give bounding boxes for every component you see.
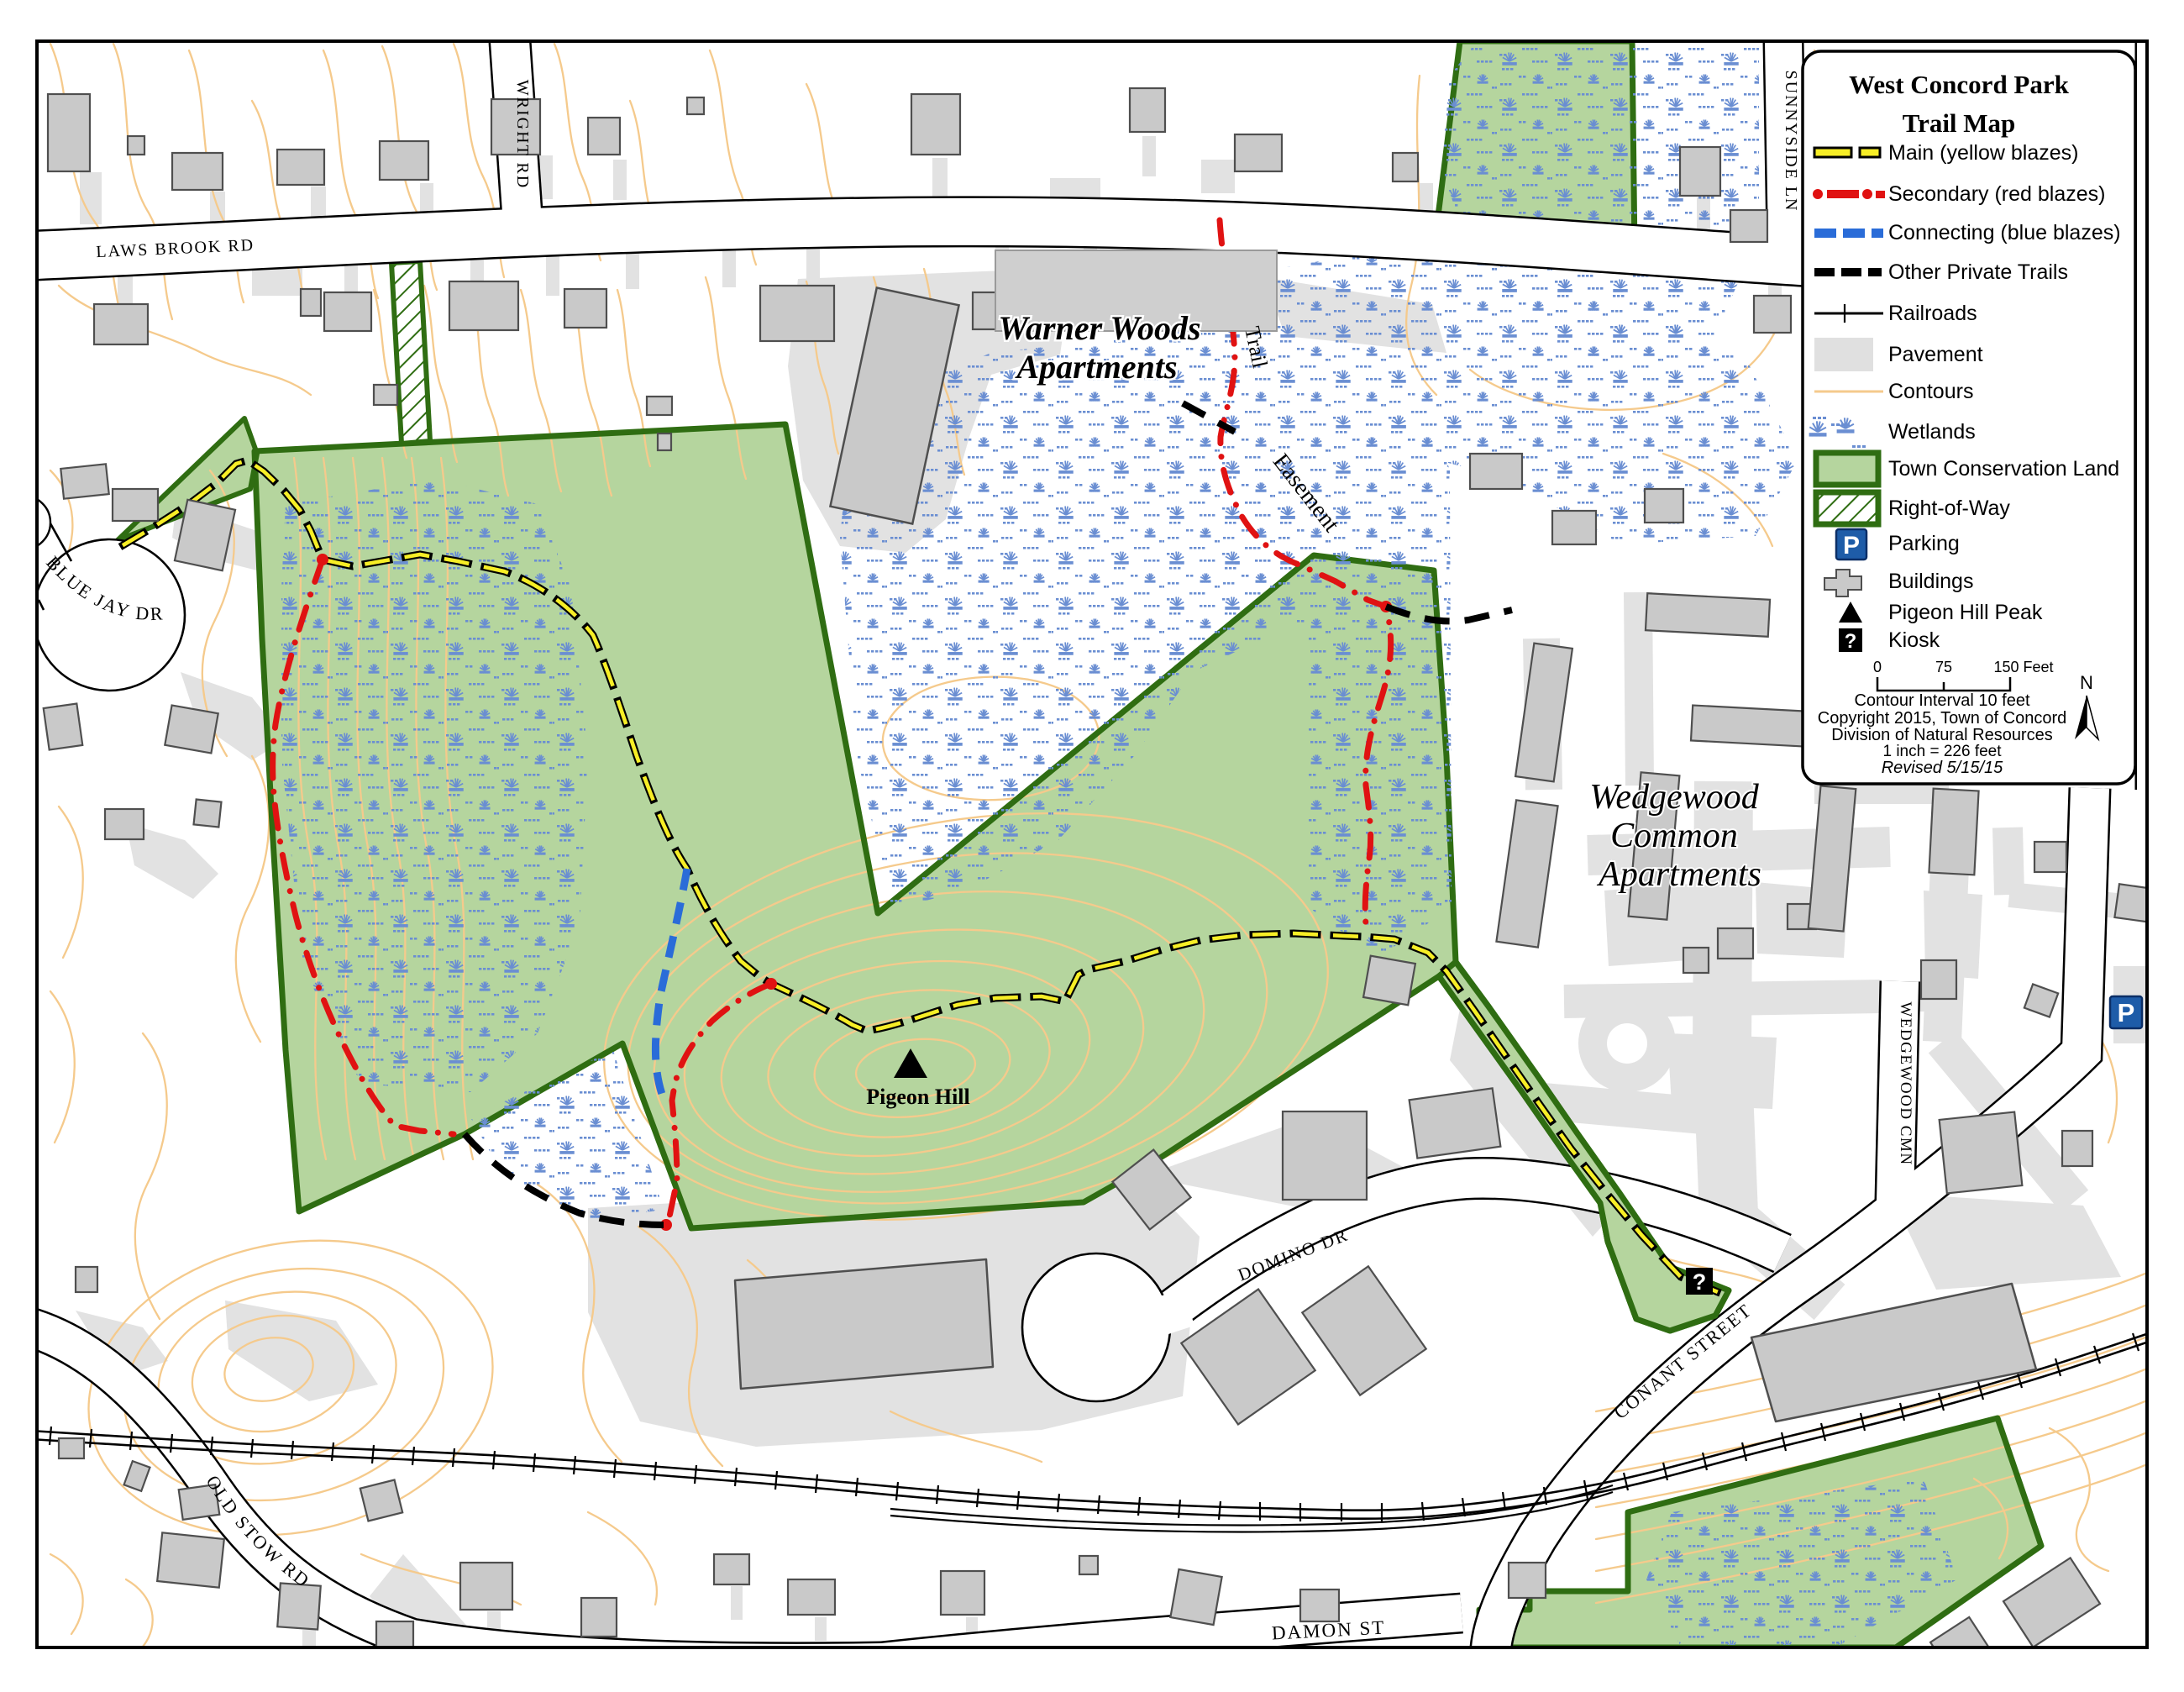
svg-text:?: ?: [1845, 630, 1857, 653]
svg-text:Railroads: Railroads: [1888, 302, 1977, 325]
svg-text:Division of Natural Resources: Division of Natural Resources: [1831, 726, 2052, 744]
svg-text:Wedgewood: Wedgewood: [1589, 778, 1759, 817]
svg-text:Right-of-Way: Right-of-Way: [1888, 497, 2010, 520]
svg-text:Warner Woods: Warner Woods: [998, 309, 1200, 347]
svg-text:West Concord Park: West Concord Park: [1849, 70, 2070, 99]
svg-text:Apartments: Apartments: [1596, 855, 1761, 894]
svg-text:1 inch = 226 feet: 1 inch = 226 feet: [1882, 743, 2002, 760]
svg-text:N: N: [2080, 672, 2093, 693]
svg-text:Buildings: Buildings: [1888, 570, 1973, 593]
svg-text:Main (yellow blazes): Main (yellow blazes): [1888, 141, 2078, 165]
svg-text:Pigeon Hill: Pigeon Hill: [866, 1085, 970, 1109]
svg-text:WRIGHT RD: WRIGHT RD: [513, 80, 532, 189]
svg-text:Kiosk: Kiosk: [1888, 628, 1940, 652]
svg-text:75: 75: [1935, 659, 1952, 675]
svg-text:Copyright 2015, Town of Concor: Copyright 2015, Town of Concord: [1818, 709, 2066, 728]
svg-text:Trail Map: Trail Map: [1903, 108, 2016, 138]
svg-text:Secondary (red blazes): Secondary (red blazes): [1888, 182, 2105, 206]
svg-text:Revised 5/15/15: Revised 5/15/15: [1882, 759, 2003, 777]
svg-text:Apartments: Apartments: [1014, 348, 1177, 386]
svg-text:Pigeon Hill Peak: Pigeon Hill Peak: [1888, 601, 2043, 624]
svg-text:0: 0: [1873, 659, 1882, 675]
svg-text:Parking: Parking: [1888, 532, 1960, 555]
svg-text:Pavement: Pavement: [1888, 343, 1983, 366]
svg-text:Contours: Contours: [1888, 380, 1973, 403]
svg-text:Common: Common: [1610, 817, 1738, 855]
svg-text:SUNNYSIDE LN: SUNNYSIDE LN: [1782, 71, 1800, 213]
svg-text:P: P: [1843, 532, 1860, 560]
svg-text:Wetlands: Wetlands: [1888, 420, 1976, 444]
svg-text:?: ?: [1693, 1269, 1707, 1295]
svg-text:Contour Interval 10 feet: Contour Interval 10 feet: [1854, 691, 2029, 710]
svg-text:Other Private Trails: Other Private Trails: [1888, 260, 2068, 284]
svg-text:150 Feet: 150 Feet: [1993, 659, 2053, 675]
svg-text:P: P: [2118, 998, 2135, 1027]
svg-text:WEDGEWOOD CMN: WEDGEWOOD CMN: [1897, 1001, 1914, 1165]
svg-text:Connecting (blue blazes): Connecting (blue blazes): [1888, 221, 2121, 244]
svg-text:Town Conservation Land: Town Conservation Land: [1888, 457, 2119, 481]
